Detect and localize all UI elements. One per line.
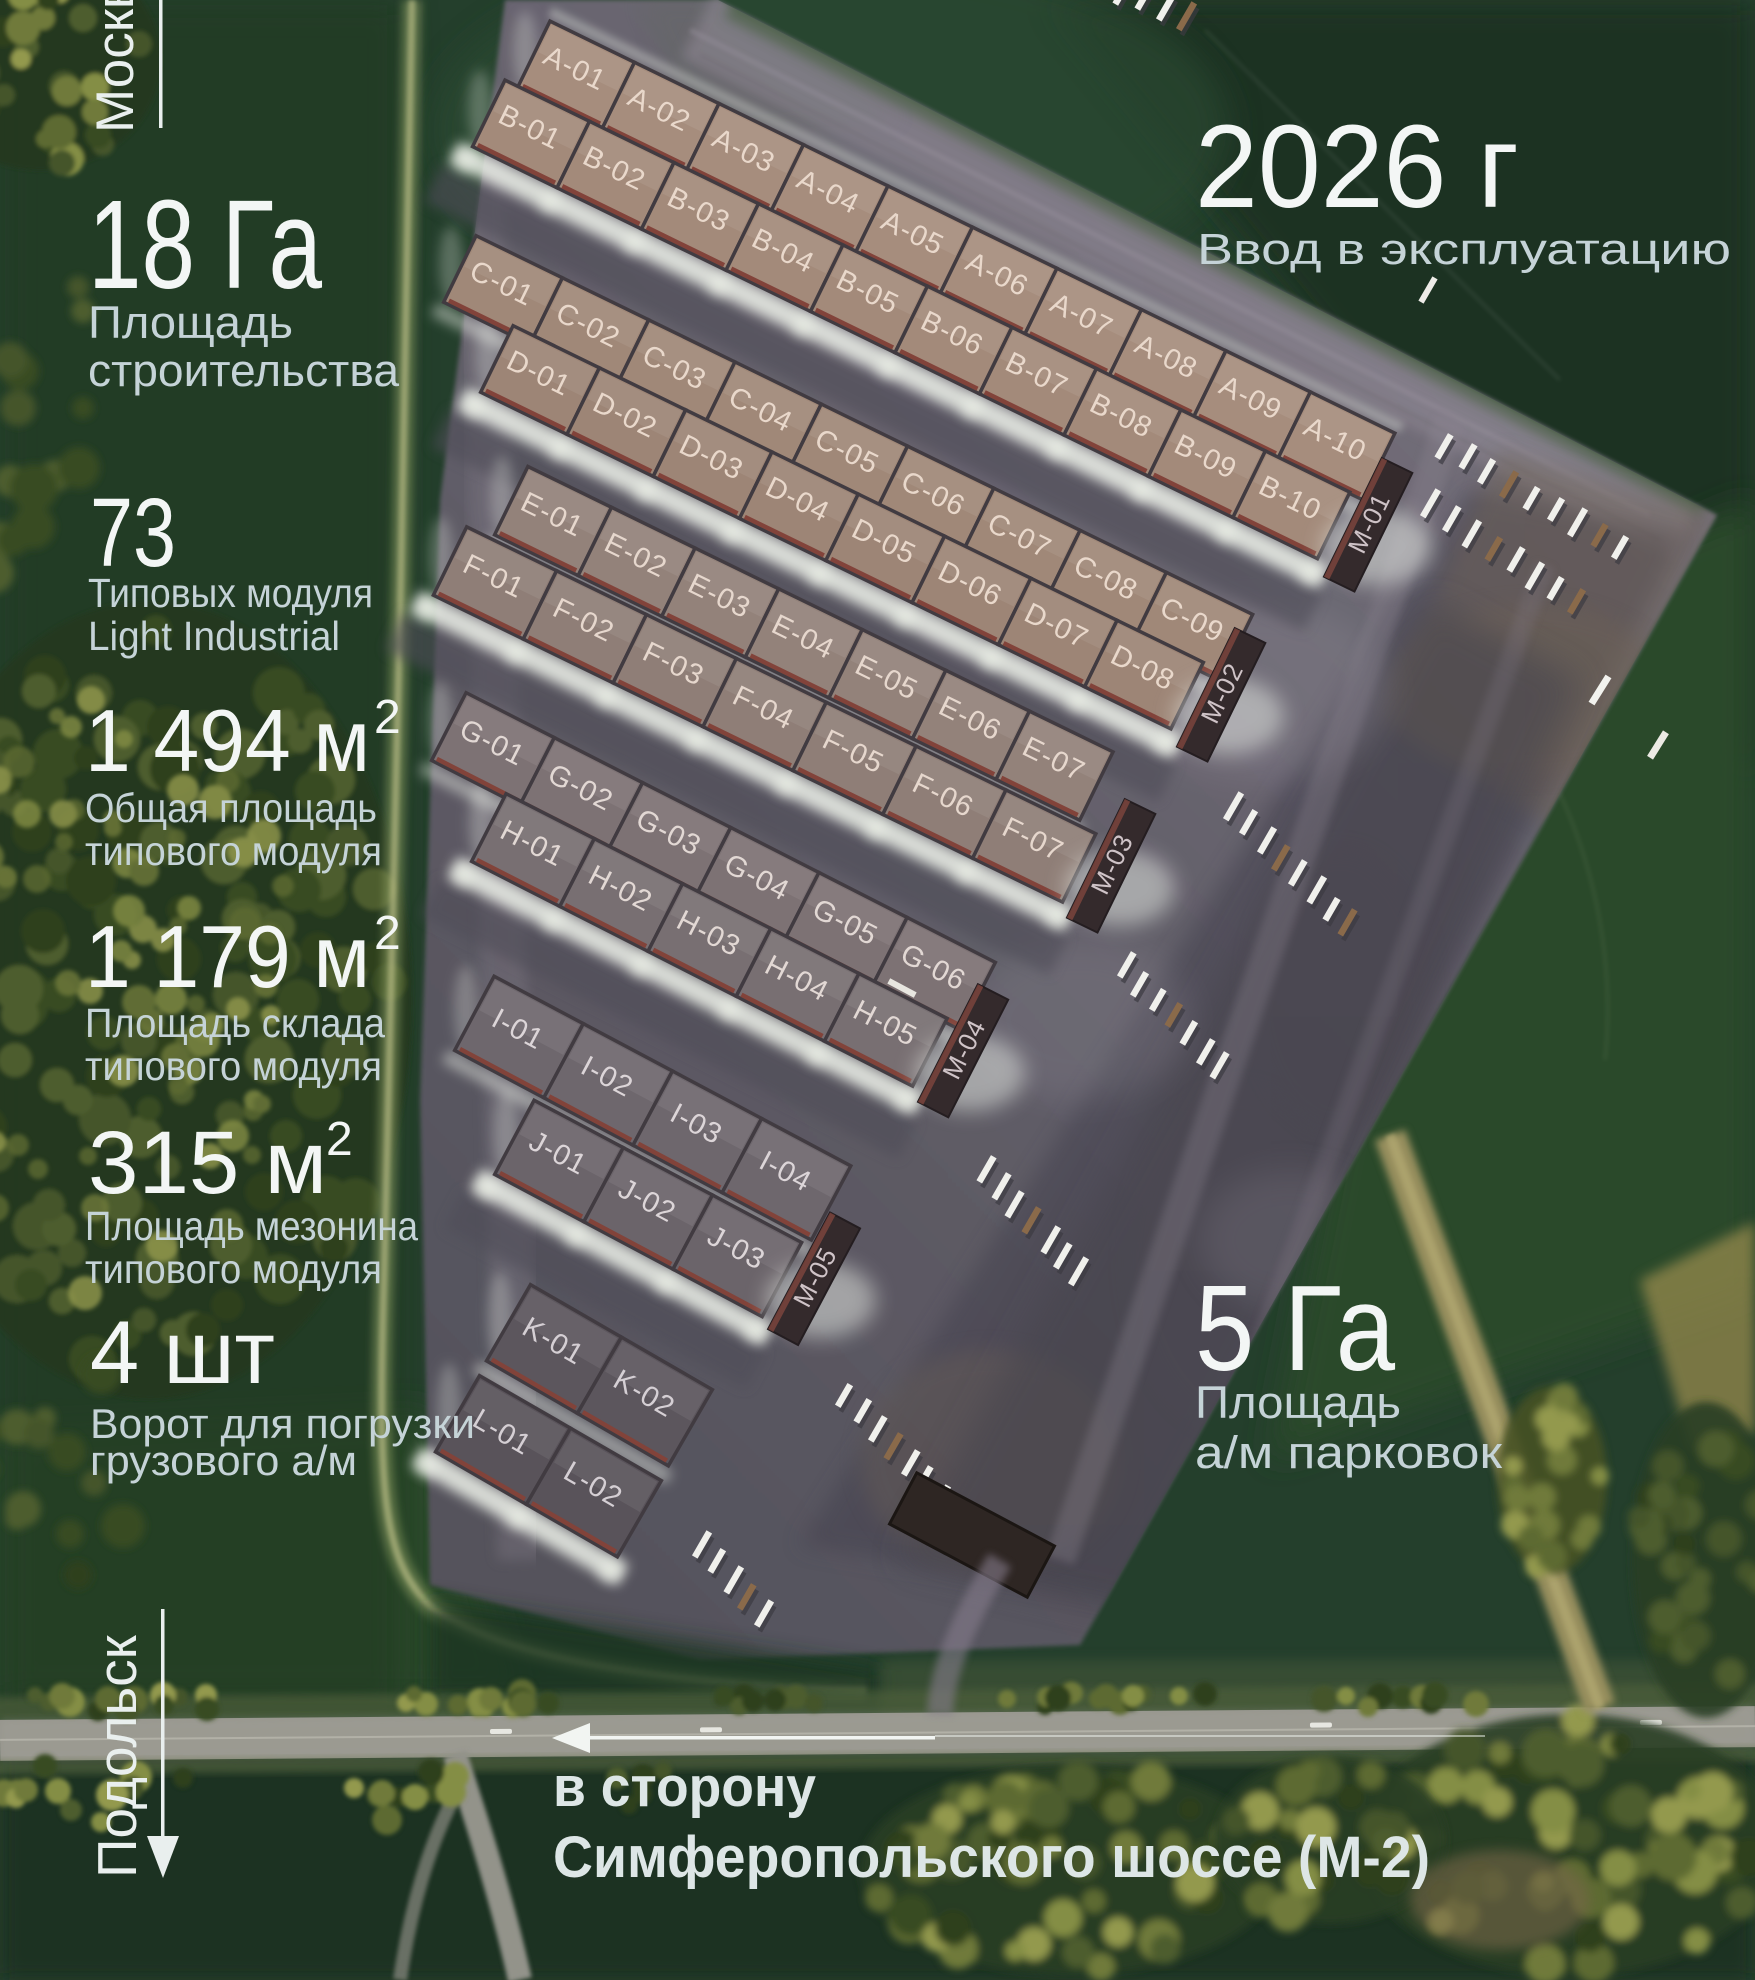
svg-text:строительства: строительства [88,345,400,396]
svg-text:Москва: Москва [86,0,145,133]
svg-text:Площадь мезонина: Площадь мезонина [85,1203,418,1249]
svg-text:Общая площадь: Общая площадь [85,785,377,831]
svg-text:5 Га: 5 Га [1195,1260,1395,1396]
svg-text:а/м парковок: а/м парковок [1195,1427,1502,1478]
svg-text:2: 2 [326,1113,353,1166]
svg-text:Типовых модуля: Типовых модуля [88,570,373,616]
svg-text:4 шт: 4 шт [90,1302,275,1402]
svg-text:Light Industrial: Light Industrial [88,613,340,659]
svg-text:2: 2 [374,907,401,960]
svg-text:в сторону: в сторону [553,1755,816,1819]
svg-text:Площадь склада: Площадь склада [85,1000,385,1046]
svg-text:типового модуля: типового модуля [85,1246,382,1292]
svg-text:18 Га: 18 Га [88,174,323,315]
svg-text:2: 2 [374,691,401,744]
svg-text:типового модуля: типового модуля [85,828,382,874]
svg-text:Симферопольского шоссе (М-2): Симферопольского шоссе (М-2) [553,1825,1430,1890]
svg-text:315 м: 315 м [88,1112,327,1212]
svg-text:2026 г: 2026 г [1195,101,1519,233]
svg-text:грузового а/м: грузового а/м [90,1437,357,1484]
svg-text:1 494 м: 1 494 м [85,691,370,790]
svg-text:Подольск: Подольск [86,1634,148,1878]
svg-text:1 179 м: 1 179 м [85,907,370,1006]
svg-text:типового модуля: типового модуля [85,1043,382,1089]
svg-text:Площадь: Площадь [1195,1377,1401,1428]
svg-text:Площадь: Площадь [88,297,293,348]
svg-text:Ввод в эксплуатацию: Ввод в эксплуатацию [1197,225,1731,274]
